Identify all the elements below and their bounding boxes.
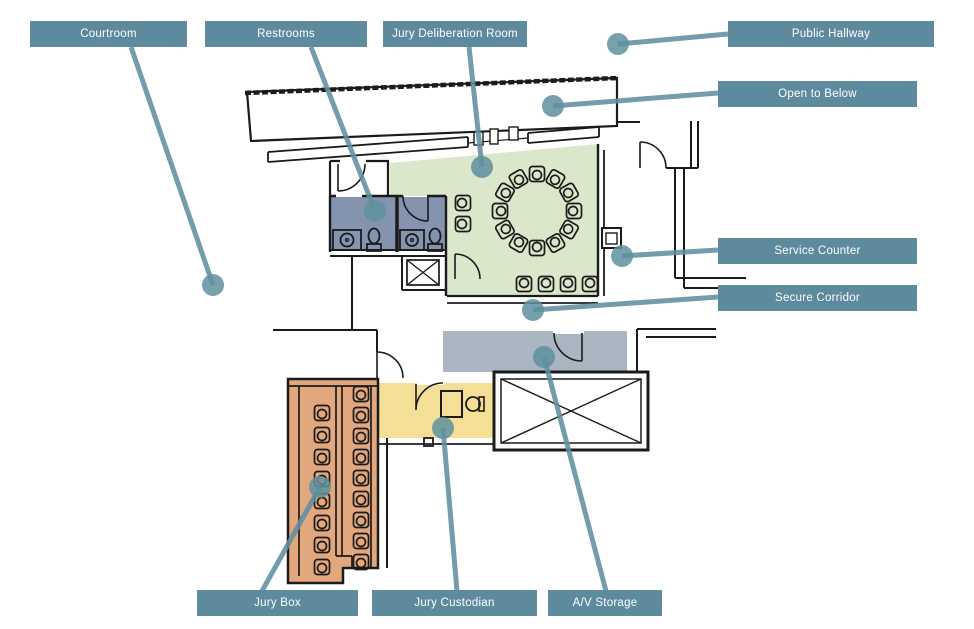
callout-jury-box: Jury Box [197, 590, 358, 616]
leader-jury-custodian [443, 428, 457, 591]
shaft-x [407, 260, 439, 285]
leader-service-counter [622, 250, 718, 256]
window-hardware [509, 127, 518, 140]
lower-vestibule-walls [273, 256, 377, 352]
door-arc [377, 352, 403, 378]
dot-service-counter [611, 245, 633, 267]
corridor-walls-lower-right [637, 329, 716, 375]
leader-public-hallway [618, 34, 728, 44]
callout-secure-corridor: Secure Corridor [718, 285, 917, 311]
dot-secure-corridor [522, 299, 544, 321]
dot-restrooms [364, 200, 386, 222]
service-counter-box [602, 228, 621, 248]
topright-walls [617, 121, 698, 168]
dot-courtroom [202, 274, 224, 296]
callout-av-storage: A/V Storage [548, 590, 662, 616]
dot-jury-deliberation [471, 156, 493, 178]
window-hardware [490, 129, 498, 144]
callout-restrooms: Restrooms [205, 21, 367, 47]
callout-open-to-below: Open to Below [718, 81, 917, 107]
dot-public-hallway [607, 33, 629, 55]
dot-jury-custodian [432, 417, 454, 439]
corridor-walls-right [675, 168, 746, 288]
callout-courtroom: Courtroom [30, 21, 187, 47]
callout-public-hallway: Public Hallway [728, 21, 934, 47]
leader-courtroom [131, 47, 213, 285]
callout-jury-custodian: Jury Custodian [372, 590, 537, 616]
door-arc [640, 142, 666, 168]
dot-av-storage [533, 346, 555, 368]
dot-jury-box [309, 476, 331, 498]
callout-jury-deliberation-room: Jury Deliberation Room [383, 21, 527, 47]
callout-service-counter: Service Counter [718, 238, 917, 264]
door-gap [553, 328, 584, 334]
dot-open-to-below [542, 95, 564, 117]
